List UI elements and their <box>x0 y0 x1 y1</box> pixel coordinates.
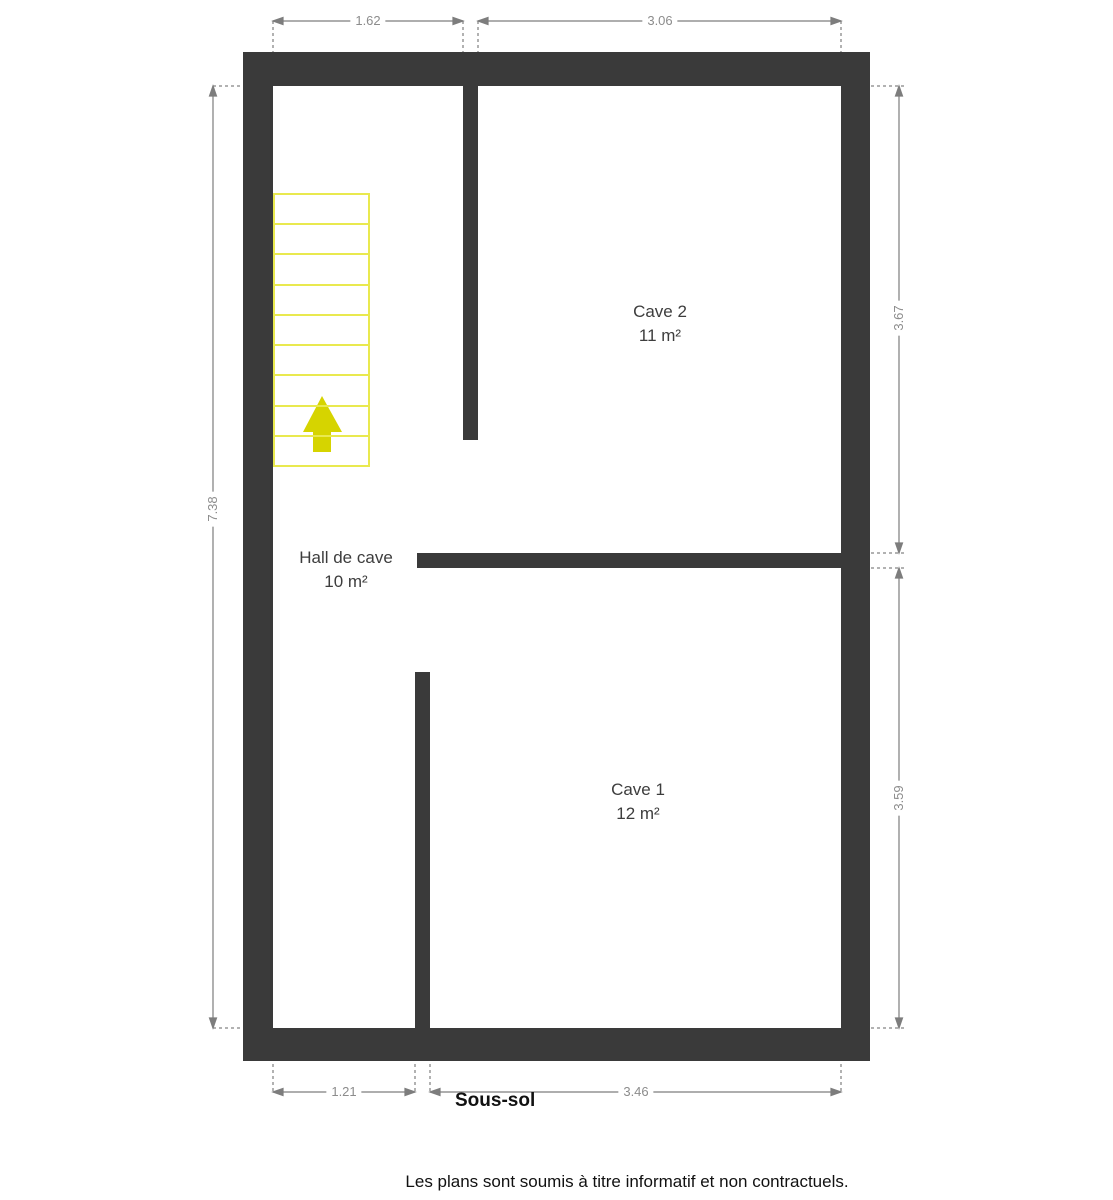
room-name: Cave 1 <box>611 778 665 802</box>
room-name: Cave 2 <box>633 300 687 324</box>
wall-right <box>841 52 870 1061</box>
dim-label-top-right: 3.06 <box>642 14 677 28</box>
wall-interior-top-vertical <box>463 86 478 440</box>
room-area: 10 m² <box>299 570 393 594</box>
room-name: Hall de cave <box>299 546 393 570</box>
room-area: 11 m² <box>633 324 687 348</box>
stair-step <box>275 286 368 316</box>
wall-interior-bottom-vertical <box>415 672 430 1028</box>
dim-label-right-bottom: 3.59 <box>892 780 906 815</box>
room-label-hall: Hall de cave 10 m² <box>299 546 393 594</box>
wall-left <box>243 52 273 1061</box>
stair-step <box>275 346 368 376</box>
room-label-cave1: Cave 1 12 m² <box>611 778 665 826</box>
wall-top <box>243 52 870 86</box>
floor-title: Sous-sol <box>455 1090 535 1112</box>
wall-bottom <box>243 1028 870 1061</box>
dimension-annotations <box>0 0 1113 1200</box>
dim-label-bottom-right: 3.46 <box>618 1085 653 1099</box>
footer-disclaimer: Les plans sont soumis à titre informatif… <box>405 1172 848 1192</box>
room-area: 12 m² <box>611 802 665 826</box>
stair-step <box>275 437 368 465</box>
dim-label-right-top: 3.67 <box>892 300 906 335</box>
stair-step <box>275 255 368 285</box>
floor-plan-page: 1.62 3.06 7.38 3.67 3.59 1.21 3.46 Cave … <box>0 0 1113 1200</box>
room-label-cave2: Cave 2 11 m² <box>633 300 687 348</box>
dim-label-bottom-left: 1.21 <box>326 1085 361 1099</box>
stair-step <box>275 225 368 255</box>
dim-label-top-left: 1.62 <box>350 14 385 28</box>
stair-step <box>275 316 368 346</box>
stair-step <box>275 376 368 406</box>
wall-divider-middle-horizontal <box>417 553 841 568</box>
stair-step <box>275 407 368 437</box>
dim-label-left: 7.38 <box>206 491 220 526</box>
staircase <box>273 193 370 467</box>
stair-step <box>275 195 368 225</box>
